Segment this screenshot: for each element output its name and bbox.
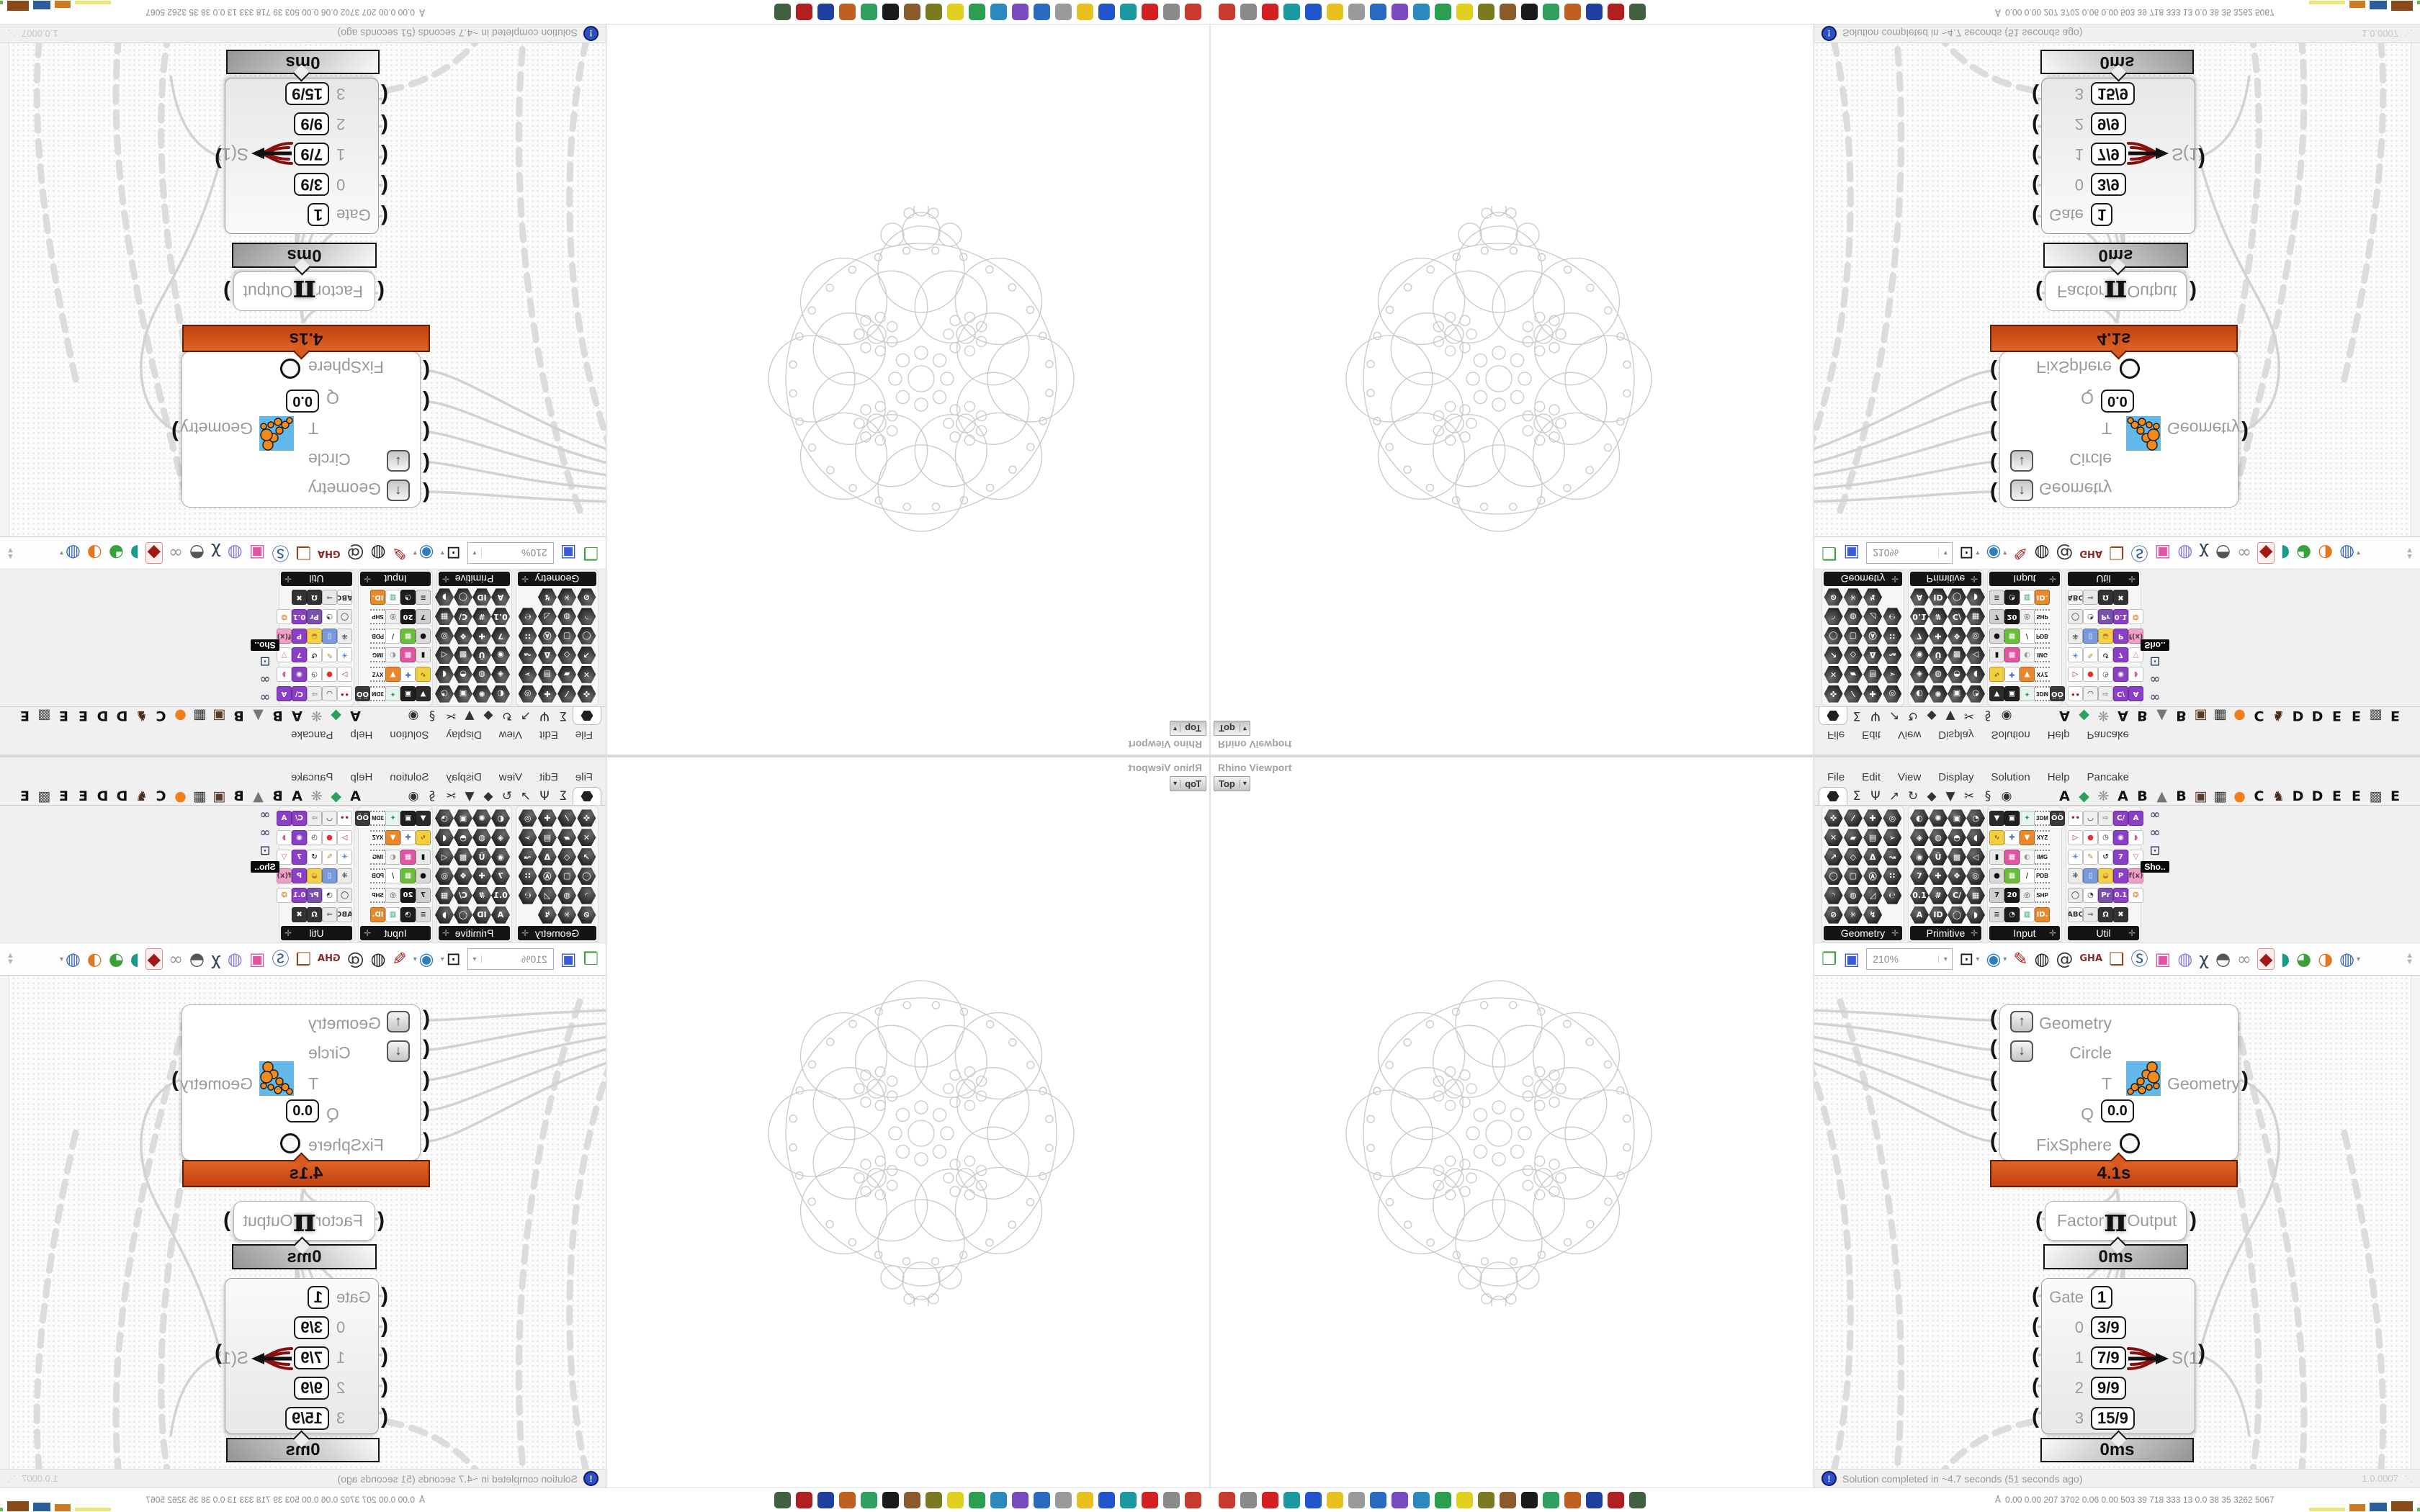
component-icon[interactable]: ◝ [577, 608, 596, 625]
component-icon[interactable]: ▤ [538, 829, 557, 846]
menu-view[interactable]: View [499, 771, 522, 783]
component-icon[interactable]: ▢ [557, 627, 576, 644]
toolbar-icon[interactable]: ▣ [249, 543, 266, 563]
chevron-down-icon[interactable]: ▾ [413, 549, 417, 557]
tab-plugin[interactable]: D [112, 788, 132, 805]
gate-row-value[interactable]: 1 [2091, 203, 2112, 226]
toolbar-icon[interactable]: ◑ [2318, 949, 2333, 969]
taskbar-app-icon[interactable] [1435, 4, 1451, 20]
component-icon[interactable]: ◖ [435, 666, 454, 683]
menu-file[interactable]: File [1827, 771, 1845, 783]
taskbar-app-icon[interactable] [1305, 4, 1322, 20]
gate-row-value[interactable]: 1 [308, 203, 329, 226]
component-icon[interactable]: ● [322, 667, 337, 682]
tab-plugin[interactable]: D [2288, 788, 2308, 805]
component-icon[interactable]: ▤ [1863, 666, 1882, 683]
stream-gate-component[interactable]: S(1) ) (Gate1(03/9(17/9(29/9(315/9 [2041, 1278, 2195, 1434]
input-grip[interactable]: ( [1990, 392, 1997, 411]
component-icon[interactable]: ∿ [1989, 667, 2004, 682]
taskbar-app-icon[interactable] [1564, 4, 1581, 20]
toolbar-icon[interactable]: ◑ [2318, 543, 2333, 563]
palette-category-label[interactable]: Input✛ [1989, 572, 2060, 586]
fixsphere-toggle-icon[interactable] [280, 359, 300, 379]
toolbar-icon[interactable]: Ⓢ [272, 543, 289, 563]
input-grip[interactable]: ( [2032, 1408, 2039, 1426]
taskbar-app-icon[interactable] [990, 1492, 1007, 1508]
toolbar-icon[interactable]: ❐ [583, 949, 599, 969]
menu-view[interactable]: View [1898, 729, 1921, 742]
component-icon[interactable]: ✚ [538, 809, 557, 827]
taskbar-app-icon[interactable] [926, 1492, 942, 1508]
component-icon[interactable]: ÖÖ [2050, 811, 2065, 826]
palette-category-label[interactable]: Geometry✛ [518, 926, 596, 940]
taskbar-app-icon[interactable] [1586, 1492, 1603, 1508]
component-icon[interactable]: ∕ [385, 868, 400, 883]
tab-icon[interactable]: Σ [554, 789, 573, 805]
component-icon[interactable]: ◐ [491, 809, 510, 827]
expand-icon[interactable]: ✛ [364, 574, 371, 584]
tab-icon[interactable]: ◆ [479, 789, 498, 805]
component-icon[interactable]: ◿ [1863, 608, 1882, 625]
component-icon[interactable]: ⇒ [2083, 590, 2098, 605]
component-icon[interactable]: ◍ [557, 887, 576, 904]
toolbar-icon[interactable]: ▣ [2155, 543, 2172, 563]
component-icon[interactable]: ▯ [322, 629, 337, 644]
component-icon[interactable]: ◍ [472, 829, 491, 846]
display-toggle-icon[interactable]: ∞ [260, 689, 271, 705]
component-icon[interactable]: ◯ [1948, 906, 1966, 924]
tab-plugin[interactable]: E [15, 788, 35, 805]
toolbar-icon[interactable]: ◍ [2177, 543, 2192, 563]
component-icon[interactable]: IMG [2035, 647, 2050, 662]
component-icon[interactable]: ✚ [1863, 685, 1882, 703]
tab-plugin[interactable]: ▦ [2210, 788, 2230, 805]
tab-plugin[interactable]: ● [171, 788, 190, 805]
expand-icon[interactable]: ✛ [1891, 928, 1899, 938]
taskbar-app-icon[interactable] [1327, 1492, 1343, 1508]
input-grip[interactable]: ( [423, 1132, 430, 1151]
component-icon[interactable]: ✕ [1824, 829, 1843, 846]
component-icon[interactable]: ❖ [1948, 868, 1966, 885]
component-icon[interactable]: ↗ [577, 647, 596, 664]
display-toggle-icon[interactable]: ⊡ [2149, 653, 2160, 669]
component-icon[interactable]: ⇒ [322, 907, 337, 922]
component-icon[interactable]: ↝ [1883, 647, 1901, 664]
taskbar-app-icon[interactable] [1391, 1492, 1408, 1508]
component-icon[interactable]: ▦ [400, 629, 416, 644]
tab-plugin[interactable]: ▲ [248, 788, 268, 805]
component-icon[interactable]: 7 [2113, 850, 2128, 865]
component-icon[interactable]: ✎ [2083, 647, 2098, 662]
tab-plugin[interactable]: ◆ [2074, 788, 2094, 805]
component-icon[interactable]: 7 [416, 609, 431, 624]
component-icon[interactable]: ◯ [454, 906, 472, 924]
component-icon[interactable]: •• [2068, 811, 2083, 826]
tab-plugin[interactable]: ▩ [2366, 788, 2385, 805]
q-value-box[interactable]: 0.0 [2101, 390, 2134, 413]
taskbar-app-icon[interactable] [774, 4, 791, 20]
tab-plugin[interactable]: A [2055, 707, 2074, 724]
component-icon[interactable]: ❖ [1948, 627, 1966, 644]
output-grip[interactable]: ) [171, 423, 179, 441]
menu-pancake[interactable]: Pancake [291, 771, 333, 783]
component-icon[interactable]: ≡ [416, 907, 431, 922]
input-grip[interactable]: ( [423, 1009, 430, 1028]
palette-category-label[interactable]: Geometry✛ [1824, 926, 1902, 940]
component-icon[interactable]: ◇ [1844, 647, 1863, 664]
component-icon[interactable]: ◈ [1910, 666, 1929, 683]
tab-plugin[interactable]: B [229, 788, 248, 805]
component-icon[interactable]: ∕ [385, 629, 400, 644]
taskbar-app-icon[interactable] [969, 1492, 985, 1508]
component-icon[interactable]: •• [2068, 686, 2083, 701]
toolbar-scroll-arrows[interactable]: ▲▼ [2406, 953, 2414, 966]
component-icon[interactable]: ⁄ [1844, 809, 1863, 827]
component-icon[interactable]: ❂ [2128, 888, 2143, 903]
component-icon[interactable]: ● [322, 830, 337, 845]
tab-plugin[interactable]: A [346, 788, 365, 805]
component-icon[interactable]: ◁ [1966, 848, 1985, 865]
component-icon[interactable]: Pr [307, 888, 322, 903]
input-grip[interactable]: ( [423, 454, 430, 473]
toolbar-icon[interactable]: ◆ [2258, 543, 2274, 563]
component-icon[interactable]: ◖ [1966, 666, 1985, 683]
component-icon[interactable]: ◐ [491, 685, 510, 703]
component-icon[interactable]: ✖ [292, 907, 307, 922]
component-icon[interactable]: ◗ [2128, 830, 2143, 845]
input-grip[interactable]: ( [377, 282, 385, 301]
taskbar-app-icon[interactable] [882, 4, 899, 20]
palette-category-label[interactable]: Util✛ [2068, 572, 2139, 586]
component-icon[interactable]: 7 [1989, 609, 2004, 624]
component-icon[interactable]: ▦ [435, 608, 454, 625]
gate-row-value[interactable]: 9/9 [2091, 1377, 2126, 1400]
component-icon[interactable]: ● [2083, 830, 2098, 845]
component-icon[interactable]: ✳ [337, 850, 352, 865]
component-icon[interactable]: ↺ [307, 850, 322, 865]
component-icon[interactable]: ✳ [1844, 588, 1863, 606]
toolbar-icon[interactable]: ✎ [2013, 949, 2027, 969]
tab-plugin[interactable]: ♞ [2269, 707, 2288, 724]
gate-row-value[interactable]: 1 [308, 1286, 329, 1309]
component-icon[interactable]: ◍ [1844, 887, 1863, 904]
component-icon[interactable]: ◷ [2098, 830, 2113, 845]
toolbar-icon[interactable]: ✎ [393, 543, 407, 563]
component-icon[interactable]: ● [1989, 629, 2004, 644]
input-grip[interactable]: ( [381, 1377, 388, 1396]
chevron-down-icon[interactable]: ▾ [1976, 955, 1979, 963]
component-icon[interactable]: 7 [1910, 868, 1929, 885]
input-grip[interactable]: ( [377, 1211, 385, 1230]
component-icon[interactable]: ✎ [322, 647, 337, 662]
toolbar-icon[interactable]: ◉ [419, 543, 434, 563]
component-icon[interactable]: ◗ [1966, 906, 1985, 924]
component-icon[interactable]: A [491, 906, 510, 924]
component-icon[interactable]: ↺ [2098, 850, 2113, 865]
output-grip[interactable]: ) [215, 150, 222, 168]
taskbar-app-icon[interactable] [1240, 4, 1257, 20]
taskbar-app-icon[interactable] [1034, 4, 1050, 20]
taskbar-app-icon[interactable] [1120, 4, 1137, 20]
taskbar-app-icon[interactable] [926, 4, 942, 20]
component-icon[interactable]: ✳ [557, 906, 576, 924]
component-icon[interactable]: ▰ [557, 666, 576, 683]
canvas-scrollbar[interactable] [0, 976, 9, 1469]
component-icon[interactable]: ◔ [400, 907, 416, 922]
taskbar-app-icon[interactable] [1283, 1492, 1300, 1508]
tab-plugin[interactable]: ♞ [132, 707, 151, 724]
component-icon[interactable]: ◗ [1966, 588, 1985, 606]
palette-category-label[interactable]: Util✛ [2068, 926, 2139, 940]
expand-icon[interactable]: ✛ [1891, 574, 1899, 584]
rhino-viewport-pane[interactable]: Rhino Viewport Top ▾ [606, 24, 1210, 755]
palette-category-label[interactable]: Util✛ [281, 572, 352, 586]
component-icon[interactable]: Ⓐ [538, 868, 557, 885]
component-icon[interactable]: 0.1 [491, 608, 510, 625]
tab-plugin[interactable]: ❋ [2094, 788, 2113, 805]
tab-plugin[interactable]: C [2249, 788, 2269, 805]
taskbar-app-icon[interactable] [882, 1492, 899, 1508]
gate-row-value[interactable]: 15/9 [285, 1407, 329, 1430]
component-icon[interactable]: ◐ [385, 647, 400, 662]
component-icon[interactable]: ◔ [2083, 888, 2098, 903]
component-icon[interactable]: ▣ [400, 811, 416, 826]
component-icon[interactable]: ◎ [519, 809, 537, 827]
tab-icon[interactable]: ↗ [1885, 707, 1904, 723]
component-icon[interactable]: ◗ [277, 667, 292, 682]
menu-display[interactable]: Display [447, 729, 482, 742]
palette-category-label[interactable]: Geometry✛ [518, 572, 596, 586]
palette-category-label[interactable]: Input✛ [360, 572, 431, 586]
component-icon[interactable]: A [2128, 811, 2143, 826]
toolbar-icon[interactable]: ◗ [2280, 949, 2290, 969]
component-icon[interactable]: ✳ [1844, 906, 1863, 924]
viewport-top-button[interactable]: Top ▾ [1214, 721, 1250, 736]
input-grip[interactable]: ( [1990, 361, 1997, 380]
resize-grip-icon[interactable]: ⋱ [2404, 29, 2414, 39]
component-icon[interactable]: ∕ [2020, 629, 2035, 644]
pi-component[interactable]: ( Factor π Output ) [2045, 1201, 2187, 1241]
tab-icon[interactable]: Σ [554, 707, 573, 723]
tab-plugin[interactable]: ▲ [2152, 788, 2172, 805]
component-icon[interactable]: ◔ [2004, 907, 2020, 922]
component-icon[interactable]: ▤ [538, 666, 557, 683]
toolbar-icon[interactable]: ◆ [2258, 949, 2274, 969]
tab-icon[interactable]: ▼ [1941, 707, 1960, 723]
input-grip[interactable]: ( [381, 86, 388, 104]
component-icon[interactable]: P [292, 868, 307, 883]
component-icon[interactable]: 0.1 [292, 609, 307, 624]
taskbar-app-icon[interactable] [1348, 4, 1365, 20]
component-icon[interactable]: ✖ [2113, 590, 2128, 605]
component-icon[interactable]: ◒ [2098, 868, 2113, 883]
taskbar-app-icon[interactable] [1543, 4, 1559, 20]
taskbar-app-icon[interactable] [1478, 1492, 1494, 1508]
toolbar-icon[interactable]: ⊡ [1959, 543, 1973, 563]
component-icon[interactable]: P [2113, 868, 2128, 883]
component-icon[interactable]: ∿ [416, 667, 431, 682]
menu-pancake[interactable]: Pancake [291, 729, 333, 742]
input-grip[interactable]: ( [423, 392, 430, 411]
tab-plugin[interactable]: ♞ [2269, 788, 2288, 805]
component-icon[interactable]: C/ [2113, 686, 2128, 701]
tab-plugin[interactable]: D [2288, 707, 2308, 724]
toolbar-icon[interactable]: ◍ [371, 543, 386, 563]
taskbar-app-icon[interactable] [796, 4, 812, 20]
component-icon[interactable]: PDB [2035, 629, 2050, 644]
component-icon[interactable]: ▦ [400, 647, 416, 662]
expand-icon[interactable]: ✛ [521, 574, 529, 584]
component-icon[interactable]: A [1910, 906, 1929, 924]
chevron-down-icon[interactable]: ▾ [1938, 955, 1952, 963]
component-icon[interactable]: ℮ [519, 887, 537, 904]
tab-plugin[interactable]: ❋ [2094, 707, 2113, 724]
component-icon[interactable]: ∷ [1883, 868, 1901, 885]
component-icon[interactable]: ◈ [491, 829, 510, 846]
component-icon[interactable]: ◎ [385, 609, 400, 624]
tab-icon[interactable]: ◆ [1922, 707, 1941, 723]
component-icon[interactable]: ✚ [472, 868, 491, 885]
component-icon[interactable]: ◇ [557, 647, 576, 664]
tab-plugin[interactable]: ❋ [307, 788, 326, 805]
resize-grip-icon[interactable]: ⋱ [6, 1474, 16, 1484]
toolbar-icon[interactable]: ❐ [583, 543, 599, 563]
toolbar-icon[interactable]: χ [211, 949, 221, 969]
component-icon[interactable]: C/ [292, 686, 307, 701]
tab-plugin[interactable]: E [2347, 788, 2366, 805]
component-icon[interactable]: ✳ [557, 588, 576, 606]
taskbar-app-icon[interactable] [839, 4, 856, 20]
taskbar-app-icon[interactable] [1163, 4, 1180, 20]
component-icon[interactable]: ✜ [1824, 685, 1843, 703]
tab-plugin[interactable]: ● [2230, 707, 2249, 724]
tab-plugin[interactable]: ▣ [2191, 788, 2210, 805]
component-icon[interactable]: ▦ [2004, 647, 2020, 662]
component-icon[interactable]: ▢ [1844, 868, 1863, 885]
toolbar-icon[interactable]: ▣ [2155, 949, 2172, 969]
input-grip[interactable]: ( [423, 361, 430, 380]
tab-icon[interactable]: ◆ [1922, 789, 1941, 805]
component-icon[interactable]: ✎ [322, 850, 337, 865]
display-toggle-icon[interactable]: ∞ [260, 671, 271, 687]
component-icon[interactable]: ↯ [1863, 906, 1882, 924]
component-icon[interactable]: A [491, 588, 510, 606]
component-icon[interactable]: ▣ [454, 685, 472, 703]
tab-icon[interactable]: § [1978, 707, 1997, 723]
taskbar-app-icon[interactable] [947, 1492, 964, 1508]
component-icon[interactable]: ✦ [2020, 811, 2035, 826]
toolbar-icon[interactable]: ◍ [228, 543, 243, 563]
taskbar-app-icon[interactable] [904, 4, 920, 20]
menu-solution[interactable]: Solution [1991, 729, 2030, 742]
expand-icon[interactable]: ✛ [1971, 928, 1978, 938]
component-icon[interactable]: 0.1 [1910, 887, 1929, 904]
menu-help[interactable]: Help [350, 729, 372, 742]
tab-icon[interactable]: Ψ [535, 789, 554, 805]
component-icon[interactable]: ◁ [435, 848, 454, 865]
taskbar-app-icon[interactable] [1142, 1492, 1158, 1508]
component-icon[interactable]: 20 [2004, 888, 2020, 903]
menu-display[interactable]: Display [1938, 771, 1973, 783]
component-icon[interactable]: ◐ [1910, 685, 1929, 703]
component-icon[interactable]: 20 [2004, 609, 2020, 624]
component-icon[interactable]: A [277, 686, 292, 701]
component-icon[interactable]: C/ [292, 811, 307, 826]
taskbar-app-icon[interactable] [1500, 4, 1516, 20]
menu-help[interactable]: Help [2048, 771, 2070, 783]
component-icon[interactable]: ABC [337, 907, 352, 922]
chevron-down-icon[interactable]: ▾ [2003, 955, 2007, 963]
component-icon[interactable]: ABC [2068, 907, 2083, 922]
component-icon[interactable]: ◖ [435, 829, 454, 846]
component-icon[interactable]: ◗ [277, 830, 292, 845]
component-icon[interactable]: ⇨ [307, 811, 322, 826]
input-grip[interactable]: ( [2032, 146, 2039, 165]
taskbar-app-icon[interactable] [1185, 1492, 1201, 1508]
component-icon[interactable]: Ⓐ [538, 627, 557, 644]
tab-icon[interactable]: ◉ [1997, 789, 2016, 805]
toolbar-icon[interactable]: @ [2056, 949, 2073, 969]
component-icon[interactable]: ℮ [1883, 608, 1901, 625]
component-icon[interactable]: ◡ [2083, 686, 2098, 701]
input-grip[interactable]: ( [1990, 1009, 1997, 1028]
menu-solution[interactable]: Solution [390, 771, 429, 783]
tab-plugin[interactable]: D [93, 788, 112, 805]
toolbar-icon[interactable]: χ [211, 543, 221, 563]
component-icon[interactable]: ❂ [277, 888, 292, 903]
tab-plugin[interactable]: ▩ [35, 707, 54, 724]
taskbar-app-icon[interactable] [1370, 4, 1386, 20]
tab-plugin[interactable]: E [54, 707, 73, 724]
input-grip[interactable]: ( [381, 146, 388, 165]
gate-row-value[interactable]: 9/9 [2091, 112, 2126, 135]
input-grip[interactable]: ( [2032, 1347, 2039, 1366]
component-icon[interactable]: ↗ [1824, 848, 1843, 865]
component-icon[interactable]: ◿ [538, 887, 557, 904]
component-icon[interactable]: ✳ [2068, 647, 2083, 662]
component-icon[interactable]: ⇨ [307, 686, 322, 701]
tab-icon[interactable]: ◉ [404, 707, 423, 723]
tab-icon[interactable]: Σ [1847, 789, 1866, 805]
taskbar-app-icon[interactable] [1283, 4, 1300, 20]
component-icon[interactable]: ◉ [1910, 848, 1929, 865]
q-value-box[interactable]: 0.0 [2101, 1099, 2134, 1122]
component-icon[interactable]: ID [472, 588, 491, 606]
component-icon[interactable]: ✜ [577, 809, 596, 827]
component-icon[interactable]: ❋ [337, 868, 352, 883]
component-icon[interactable]: 0.1 [1910, 608, 1929, 625]
component-icon[interactable]: Ⓐ [1863, 627, 1882, 644]
component-icon[interactable]: ◎ [1883, 809, 1901, 827]
menu-edit[interactable]: Edit [539, 771, 558, 783]
component-icon[interactable]: Pr [307, 609, 322, 624]
component-icon[interactable]: ◉ [292, 667, 307, 682]
tab-icon[interactable]: Ψ [1866, 707, 1885, 723]
gate-row-value[interactable]: 7/9 [294, 1346, 329, 1369]
tab-plugin[interactable]: ♞ [132, 788, 151, 805]
taskbar-app-icon[interactable] [990, 4, 1007, 20]
toolbar-icon[interactable]: ◍ [2034, 949, 2049, 969]
tab-icon[interactable]: Ψ [1866, 789, 1885, 805]
gate-row-value[interactable]: 3/9 [294, 1316, 329, 1339]
component-icon[interactable]: A [2128, 686, 2143, 701]
input-grip[interactable]: ( [2032, 207, 2039, 225]
taskbar-app-icon[interactable] [817, 1492, 834, 1508]
component-icon[interactable]: A [277, 811, 292, 826]
output-grip[interactable]: ) [223, 1211, 230, 1230]
toolbar-icon[interactable]: ◍ [371, 949, 386, 969]
tab-plugin[interactable]: E [2385, 788, 2405, 805]
